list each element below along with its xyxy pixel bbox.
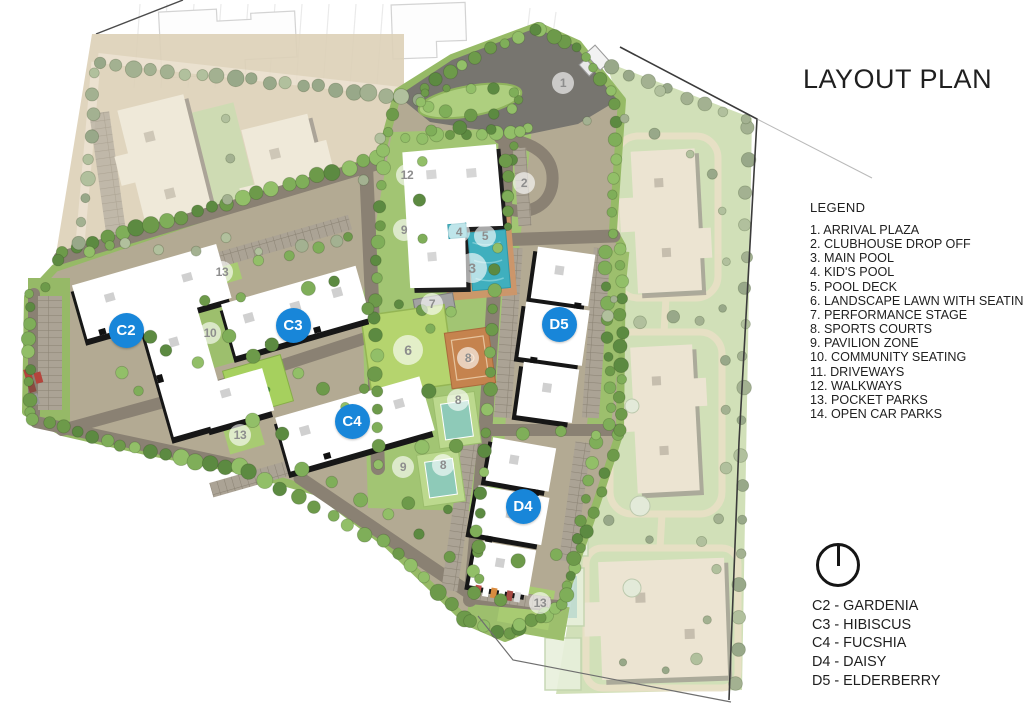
marker-walkways: 12 — [396, 164, 418, 186]
layout-plan-page: 1 12 2 9 4 5 3 7 6 8 8 8 9 13 10 13 13 C… — [0, 0, 1024, 726]
tower-marker-c4: C4 — [335, 404, 370, 439]
legend-item: 13. POCKET PARKS — [810, 393, 1024, 407]
tower-label: D5 - ELDERBERRY — [812, 672, 941, 691]
marker-pavilion-zone-2: 9 — [392, 456, 414, 478]
marker-kids-pool: 4 — [448, 221, 470, 243]
marker-arrival-plaza: 1 — [552, 72, 574, 94]
north-indicator-icon — [816, 543, 860, 587]
legend-item: 7. PERFORMANCE STAGE — [810, 308, 1024, 322]
legend-list: 1. ARRIVAL PLAZA 2. CLUBHOUSE DROP OFF 3… — [810, 223, 1024, 421]
page-title: LAYOUT PLAN — [803, 64, 992, 95]
legend-item: 3. MAIN POOL — [810, 251, 1024, 265]
legend-item: 8. SPORTS COURTS — [810, 322, 1024, 336]
tower-label: D4 - DAISY — [812, 653, 941, 672]
legend-item: 2. CLUBHOUSE DROP OFF — [810, 237, 1024, 251]
legend-item: 6. LANDSCAPE LAWN WITH SEATING — [810, 294, 1024, 308]
marker-pool-deck: 5 — [474, 225, 496, 247]
tower-marker-c3: C3 — [276, 308, 311, 343]
tower-label: C4 - FUCSHIA — [812, 634, 941, 653]
marker-sports-court-1: 8 — [457, 347, 479, 369]
marker-performance-stage: 7 — [421, 293, 443, 315]
tower-name-list: C2 - GARDENIA C3 - HIBISCUS C4 - FUCSHIA… — [812, 597, 941, 691]
tower-marker-d5: D5 — [542, 307, 577, 342]
marker-pavilion-zone: 9 — [393, 219, 415, 241]
marker-landscape-lawn: 6 — [393, 335, 423, 365]
marker-main-pool: 3 — [457, 253, 487, 283]
tower-marker-c2: C2 — [109, 313, 144, 348]
legend-item: 1. ARRIVAL PLAZA — [810, 223, 1024, 237]
tower-label: C3 - HIBISCUS — [812, 616, 941, 635]
marker-sports-court-3: 8 — [432, 454, 454, 476]
marker-pocket-park-2: 13 — [229, 424, 251, 446]
legend-item: 11. DRIVEWAYS — [810, 365, 1024, 379]
legend-item: 12. WALKWAYS — [810, 379, 1024, 393]
marker-sports-court-2: 8 — [447, 389, 469, 411]
legend-heading: LEGEND — [810, 200, 865, 215]
legend-item: 9. PAVILION ZONE — [810, 336, 1024, 350]
tower-label: C2 - GARDENIA — [812, 597, 941, 616]
legend-item: 10. COMMUNITY SEATING — [810, 350, 1024, 364]
legend-item: 5. POOL DECK — [810, 280, 1024, 294]
legend-item: 14. OPEN CAR PARKS — [810, 407, 1024, 421]
marker-pocket-park-3: 13 — [529, 592, 551, 614]
marker-pocket-park-1: 13 — [211, 261, 233, 283]
marker-community-seating: 10 — [199, 322, 221, 344]
tower-marker-d4: D4 — [506, 489, 541, 524]
legend-item: 4. KID'S POOL — [810, 265, 1024, 279]
marker-clubhouse-dropoff: 2 — [513, 172, 535, 194]
